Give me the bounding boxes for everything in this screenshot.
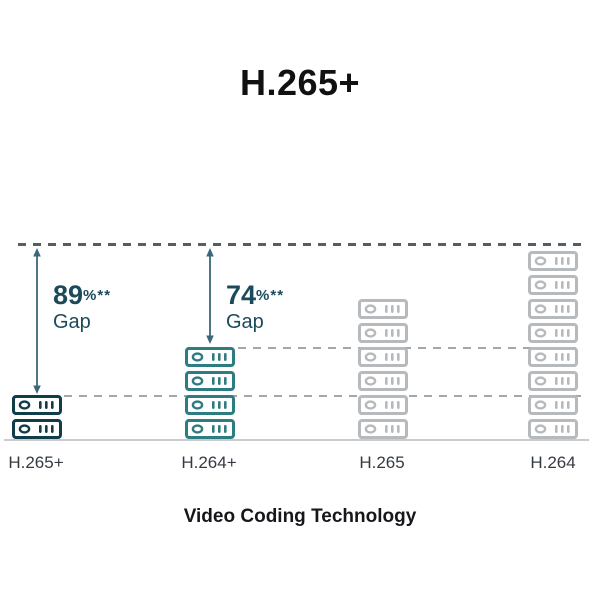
storage-drive-icon: [528, 275, 578, 295]
gap-value-row: 74%**: [226, 280, 284, 310]
storage-drive-icon: [358, 323, 408, 343]
gap-annotation-89: 89%** Gap: [53, 280, 111, 333]
storage-drive-icon: [358, 347, 408, 367]
gap-caption: Gap: [226, 311, 284, 333]
drive-stack-h264plus: [185, 347, 235, 439]
storage-drive-icon: [528, 395, 578, 415]
storage-drive-icon: [185, 371, 235, 391]
storage-drive-icon: [358, 395, 408, 415]
category-label-h265plus: H.265+: [8, 453, 63, 473]
storage-drive-icon: [528, 419, 578, 439]
category-label-h264: H.264: [530, 453, 575, 473]
x-axis-title: Video Coding Technology: [0, 506, 600, 528]
storage-drive-icon: [358, 371, 408, 391]
storage-drive-icon: [185, 419, 235, 439]
gap-caption: Gap: [53, 311, 111, 333]
reference-line-8-drives: [18, 243, 581, 246]
storage-drive-icon: [358, 419, 408, 439]
page-title: H.265+: [0, 62, 600, 104]
drive-stack-h265plus: [12, 395, 62, 439]
storage-drive-icon: [528, 347, 578, 367]
infographic-canvas: H.265+ 89%** Gap 74%** Gap H.265+ H.264+…: [0, 0, 600, 600]
storage-drive-icon: [528, 371, 578, 391]
storage-drive-icon: [358, 299, 408, 319]
gap-suffix: %**: [83, 287, 111, 304]
x-axis-baseline: [4, 439, 589, 441]
drive-stack-h264: [528, 251, 578, 439]
gap-arrow-74-icon: [203, 247, 217, 345]
category-label-h265: H.265: [359, 453, 404, 473]
gap-value: 89: [53, 280, 83, 310]
storage-drive-icon: [185, 395, 235, 415]
gap-value-row: 89%**: [53, 280, 111, 310]
reference-line-2-drives: [64, 395, 581, 397]
gap-arrow-89-icon: [30, 247, 44, 395]
storage-drive-icon: [528, 323, 578, 343]
gap-suffix: %**: [256, 287, 284, 304]
category-label-h264plus: H.264+: [181, 453, 236, 473]
drive-stack-h265: [358, 299, 408, 439]
gap-value: 74: [226, 280, 256, 310]
storage-drive-icon: [528, 299, 578, 319]
gap-annotation-74: 74%** Gap: [226, 280, 284, 333]
storage-drive-icon: [12, 419, 62, 439]
storage-drive-icon: [528, 251, 578, 271]
storage-drive-icon: [12, 395, 62, 415]
storage-drive-icon: [185, 347, 235, 367]
